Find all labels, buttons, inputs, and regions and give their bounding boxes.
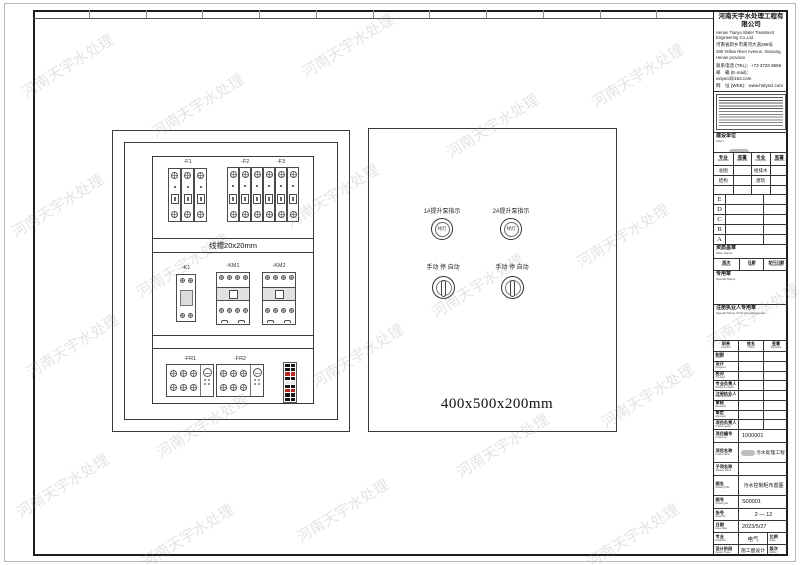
header-en: Discipline [718, 160, 729, 163]
light1-label: 1#提升泵指示 [407, 206, 477, 215]
header-en: Date [749, 265, 754, 268]
dot [208, 383, 210, 385]
relay-k1 [176, 274, 196, 322]
contactor-core [229, 290, 238, 299]
sign-row-reviewed: 审核Reviewed [714, 401, 788, 411]
row-en: Reviewed [716, 406, 739, 409]
cell [770, 166, 789, 175]
scale-cell: 比例Scale [767, 533, 788, 544]
col-header: 发行日期Issued Date [763, 259, 788, 270]
discipline-table-header: 专业Discipline 签署Signature 专业Discipline 签署… [714, 153, 788, 166]
row-en: Designed [716, 367, 739, 370]
indicator-light-1: 绿灯 [431, 218, 453, 240]
dial-icon [253, 368, 262, 377]
terminal-row [168, 384, 199, 391]
signature-rows: 制图Drawn 设计Designed 校对Checked 专业负责人Discip… [714, 352, 788, 430]
dot [208, 379, 210, 381]
value-cell: 电气 [738, 533, 767, 544]
col-header: 版次Revision [714, 259, 739, 270]
screw-icon [180, 384, 187, 391]
col-header: 专业Discipline [714, 153, 733, 165]
cell [770, 186, 789, 195]
breaker-module [227, 167, 239, 222]
label-en: Sheet No. [716, 516, 739, 519]
special-stamp-box: 专用章 Special Stamp [714, 271, 788, 305]
revision-letter: E [714, 195, 725, 204]
signature-header-cells: 职责Function 姓名Name 签署Signature [714, 341, 788, 351]
circuit-breaker-f2-f3 [227, 167, 299, 222]
label-cell: 项目名称Project Name [714, 443, 738, 462]
wire-duct-label: 线槽20x20mm [209, 240, 257, 251]
name-cell [738, 401, 763, 410]
disclaimer-text-en-lines [719, 111, 783, 128]
screw-icon [278, 171, 285, 178]
client-section: 建设单位 Client 有限公司 [714, 133, 788, 153]
circuit-breaker-f1 [168, 168, 207, 222]
header-en: Issued Date [769, 265, 782, 268]
label-cell: 设计阶段Design Phase [714, 545, 738, 556]
breaker-label-f3: -F3 [263, 159, 299, 165]
label-cell: 图名Drawing Title [714, 476, 738, 495]
screw-icon [190, 370, 197, 377]
header-en: Discipline [755, 160, 766, 163]
drawing-no-value: S00001 [742, 499, 761, 505]
company-email: 邮 箱 (E-mail)：xxtyscl@163.com [716, 70, 786, 82]
screw-icon [171, 211, 178, 218]
special-stamp-en: Special Stamp [716, 278, 786, 281]
name-cell [738, 391, 763, 400]
screw-icon [180, 313, 185, 318]
value-cell [738, 463, 788, 475]
contactor-terminals [217, 275, 249, 280]
edition-cell: 版次Edition [767, 545, 788, 556]
screw-icon [273, 308, 278, 313]
foot-tab [238, 320, 245, 323]
cell [733, 176, 752, 185]
breaker-module [168, 168, 181, 222]
cell-text: 结构 [719, 178, 728, 184]
revision-row: D [714, 205, 788, 215]
phase-value: 施工图设计 [741, 547, 765, 554]
dot [258, 383, 260, 385]
indicator-dot [200, 186, 202, 188]
screw-icon [227, 308, 232, 313]
dot [258, 379, 260, 381]
revision-letter: A [714, 235, 725, 245]
header-en: Signature [771, 347, 782, 350]
screw-icon [219, 308, 224, 313]
cell [763, 215, 788, 224]
terminal-row [218, 384, 249, 391]
sign-row-registered-engineer: 注册执业人Regi. Engineer [714, 391, 788, 401]
screw-icon [220, 370, 227, 377]
cell [733, 186, 752, 195]
revision-letter: D [714, 205, 725, 214]
client-value: 有限公司 [716, 144, 786, 153]
label-en: Project Name [716, 454, 739, 457]
cell [725, 195, 763, 204]
relay-terminals [180, 313, 193, 318]
discipline-row-empty [714, 186, 788, 195]
indicator-dot [256, 185, 258, 187]
header-en: Signature [737, 160, 748, 163]
dot [204, 379, 206, 381]
breaker-label-f2: -F2 [227, 159, 263, 165]
label-en: Edition [770, 552, 789, 555]
terminal-row [168, 370, 199, 377]
screw-icon [188, 313, 193, 318]
foot-tab [221, 320, 228, 323]
indicator-light-2: 绿灯 [500, 218, 522, 240]
label-en: Design Phase [716, 552, 739, 555]
design-phase-row: 设计阶段Design Phase 施工图设计 版次Edition [714, 545, 788, 556]
screw-icon [266, 171, 273, 178]
signature-cell [763, 391, 788, 400]
screw-icon [289, 308, 294, 313]
switch-handle-icon [441, 280, 446, 297]
screw-icon [197, 211, 204, 218]
switch2-label: 手动 停 自动 [477, 262, 547, 271]
screw-icon [219, 275, 224, 280]
drawing-title-value: 污水控制柜布置图 [743, 482, 783, 489]
name-cell [738, 362, 763, 371]
breaker-module [251, 167, 263, 222]
date-row: 日期Issue Date 2023/5/27 [714, 521, 788, 533]
screw-icon [170, 370, 177, 377]
screw-icon [278, 211, 285, 218]
signature-cell [763, 401, 788, 410]
contactor-terminals [263, 308, 295, 313]
company-web: 网 址 (WEB)：www.hntyscl.com [716, 83, 786, 89]
foot-tab [284, 320, 291, 323]
sign-row-designed: 设计Designed [714, 362, 788, 372]
screw-icon [184, 172, 191, 179]
toggle-icon [253, 194, 261, 204]
revision-row: B [714, 225, 788, 235]
label-en: Project No. [716, 437, 739, 440]
company-name-en: Henan Tianyu Water Treatment Engineering… [716, 30, 786, 41]
cell-text: 总图 [719, 168, 728, 174]
cell [725, 235, 763, 245]
cell [725, 215, 763, 224]
overload-relay-fr2 [216, 364, 264, 397]
plate-stamp-row: 资质盖章 Plate Stamp [714, 245, 788, 259]
lamp-text: 绿灯 [507, 226, 516, 232]
contactor-core [275, 290, 284, 299]
screw-icon [230, 211, 237, 218]
label-cell: 项目编号Project No. [714, 430, 738, 442]
screw-icon [281, 275, 286, 280]
cell: 总图 [714, 166, 733, 175]
label-en: Scale [770, 540, 789, 543]
col-header: 日期Date [739, 259, 764, 270]
screw-icon [289, 275, 294, 280]
cell-text: 给排水 [754, 168, 768, 174]
revision-row: E [714, 195, 788, 205]
cell-text: 建筑 [756, 178, 765, 184]
col-header: 专业Discipline [751, 153, 770, 165]
disclaimer-border [716, 94, 786, 130]
label-cell: 图号Drawing No. [714, 496, 738, 508]
contactor-terminals [263, 275, 295, 280]
toggle-icon [197, 194, 205, 204]
cell [751, 186, 770, 195]
screw-icon [188, 278, 193, 283]
disclaimer-box [714, 92, 788, 133]
label-en: Issue Date [716, 528, 739, 531]
lamp-text: 绿灯 [438, 226, 447, 232]
terminal-block-strip [283, 362, 297, 403]
header-en: Signature [774, 160, 785, 163]
revision-date-cells: 版次Revision 日期Date 发行日期Issued Date [714, 259, 788, 270]
revision-letter: B [714, 225, 725, 234]
value-cell: 污水控制柜布置图 [738, 476, 788, 495]
switch-face [505, 280, 521, 296]
discipline-row: 结构 建筑 [714, 176, 788, 186]
switch-face [436, 280, 452, 296]
signature-cell [763, 420, 788, 429]
label-en: Drawing No. [716, 503, 739, 506]
screw-icon [190, 384, 197, 391]
cell [763, 195, 788, 204]
signature-header: 职责Function 姓名Name 签署Signature [714, 341, 788, 352]
col-header: 姓名Name [738, 341, 763, 351]
screw-icon [254, 211, 261, 218]
breaker-module [194, 168, 207, 222]
date-value: 2023/5/27 [742, 524, 766, 530]
signature-cell [763, 352, 788, 361]
sign-row-drawn: 制图Drawn [714, 352, 788, 362]
indicator-dot [232, 185, 234, 187]
value-cell: 污水处理工程 [738, 443, 788, 462]
screw-icon [243, 308, 248, 313]
breaker-module [239, 167, 251, 222]
screw-icon [254, 171, 261, 178]
overload-dial-panel [250, 365, 263, 396]
row-en: Checked [716, 377, 739, 380]
breaker-label-f1: -F1 [168, 159, 207, 165]
company-tel: 联系电话 (TEL)：+73 3733 8666 [716, 63, 786, 69]
col-header: 签署Signature [770, 153, 789, 165]
toggle-icon [289, 194, 297, 204]
breaker-module [287, 167, 299, 222]
revision-letter: C [714, 215, 725, 224]
name-cell [738, 381, 763, 390]
drawing-title-row: 图名Drawing Title 污水控制柜布置图 [714, 476, 788, 496]
switch1-label: 手动 停 自动 [408, 262, 478, 271]
plate-stamp-en: Plate Stamp [716, 252, 786, 255]
screw-icon [184, 211, 191, 218]
breaker-module [275, 167, 287, 222]
row-en: Project Leader [716, 426, 739, 429]
screw-icon [243, 275, 248, 280]
registered-stamp-en: Special Stamp Of Person Registered [716, 312, 786, 315]
sheet-no-row: 张号Sheet No. 2 — 12 [714, 509, 788, 521]
row-en: Drawn [716, 357, 739, 360]
project-no-row: 项目编号Project No. 1000001 [714, 430, 788, 443]
project-no-value: 1000001 [742, 433, 763, 439]
dot [204, 383, 206, 385]
contactor-band [263, 287, 295, 301]
label-cell: 日期Issue Date [714, 521, 738, 532]
screw-icon [230, 384, 237, 391]
project-name-row: 项目名称Project Name 污水处理工程 [714, 443, 788, 463]
top-zone-strip [33, 10, 713, 19]
light2-label: 2#提升泵指示 [476, 206, 546, 215]
screw-icon [197, 172, 204, 179]
header-en: Revision [722, 265, 732, 268]
contactor-label-km2: -KM2 [254, 263, 304, 269]
cell [763, 235, 788, 245]
selector-switch-2 [501, 276, 524, 299]
indicator-dot [268, 185, 270, 187]
cell: 给排水 [751, 166, 770, 175]
col-header: 签署Signature [763, 341, 788, 351]
screw-icon [170, 384, 177, 391]
screw-icon [227, 275, 232, 280]
label-en: Drawing Title [716, 487, 739, 490]
signature-cell [763, 362, 788, 371]
cabinet-dimension-text: 400x500x200mm [397, 396, 597, 413]
cell [714, 186, 733, 195]
overload-relay-fr1 [166, 364, 214, 397]
screw-icon [290, 171, 297, 178]
screw-icon [281, 308, 286, 313]
terminal-row [218, 370, 249, 377]
company-address-cn: 河南省新乡市黄河大道288号 [716, 42, 786, 48]
overload-poles [167, 365, 200, 396]
registered-stamp-box: 注册执业人专用章 Special Stamp Of Person Registe… [714, 305, 788, 341]
name-cell [738, 420, 763, 429]
cell [725, 205, 763, 214]
cell [733, 166, 752, 175]
test-buttons [254, 379, 260, 385]
indicator-dot [244, 185, 246, 187]
value-cell: S00001 [738, 496, 788, 508]
label-cell: 子项名称Subitem Name [714, 463, 738, 475]
screw-icon [290, 211, 297, 218]
screw-icon [220, 384, 227, 391]
contactor-km1 [216, 272, 250, 325]
selector-switch-1 [432, 276, 455, 299]
breaker-module [263, 167, 275, 222]
indicator-dot [292, 185, 294, 187]
sheet-no-value: 2 — 12 [755, 512, 773, 518]
screw-icon [180, 370, 187, 377]
lamp-lens: 绿灯 [504, 222, 519, 237]
screw-icon [265, 275, 270, 280]
overload-dial-panel [200, 365, 213, 396]
row-en: Approved [716, 416, 739, 419]
screw-icon [240, 370, 247, 377]
revision-row: A [714, 235, 788, 245]
cell [770, 176, 789, 185]
relay-label-k1: -K1 [168, 265, 204, 271]
sign-row-checked: 校对Checked [714, 372, 788, 382]
overload-poles [217, 365, 250, 396]
contactor-feet [263, 320, 295, 323]
value-cell: 施工图设计 [738, 545, 767, 556]
cell [763, 225, 788, 234]
redaction-blob [741, 450, 755, 456]
name-cell [738, 372, 763, 381]
dot [254, 379, 256, 381]
client-label-en: Client [716, 140, 786, 143]
indicator-dot [280, 185, 282, 187]
drawing-sheet: 河南天宇水处理 河南天宇水处理 河南天宇水处理 河南天宇水处理 河南天宇水处理 … [0, 0, 800, 565]
project-name-value: 污水处理工程 [756, 449, 785, 456]
screw-icon [235, 308, 240, 313]
toggle-icon [265, 194, 273, 204]
contactor-terminals [217, 308, 249, 313]
breaker-module [181, 168, 194, 222]
company-name-cn: 河南天宇水处理工程有限公司 [716, 13, 786, 29]
contactor-feet [217, 320, 249, 323]
name-cell [738, 411, 763, 420]
wire-duct: 线槽20x20mm [152, 238, 314, 253]
panel-front-view [368, 128, 617, 432]
revision-letter-table: E D C B A [714, 195, 788, 245]
toggle-icon [171, 194, 179, 204]
title-block: 河南天宇水处理工程有限公司 Henan Tianyu Water Treatme… [713, 10, 788, 556]
sign-row-project-leader: 项目负责人Project Leader [714, 420, 788, 429]
discipline-row: 总图 给排水 [714, 166, 788, 176]
label-cell: 专业Discipline [714, 533, 738, 544]
toggle-icon [277, 194, 285, 204]
label-en: Subitem Name [716, 470, 739, 473]
overload-label-fr1: -FR1 [166, 356, 214, 362]
overload-label-fr2: -FR2 [216, 356, 264, 362]
contactor-km2 [262, 272, 296, 325]
revision-date-header: 版次Revision 日期Date 发行日期Issued Date [714, 259, 788, 271]
value-cell: 1000001 [738, 430, 788, 442]
name-cell [738, 352, 763, 361]
subitem-row: 子项名称Subitem Name [714, 463, 788, 476]
revision-row: C [714, 215, 788, 225]
screw-icon [265, 308, 270, 313]
screw-icon [180, 278, 185, 283]
screw-icon [242, 171, 249, 178]
contactor-label-km1: -KM1 [208, 263, 258, 269]
relay-terminals [180, 278, 193, 283]
relay-body [180, 290, 193, 306]
label-en: Discipline [716, 540, 739, 543]
screw-icon [230, 171, 237, 178]
toggle-icon [229, 194, 237, 204]
discipline-signature-table: 专业Discipline 签署Signature 专业Discipline 签署… [714, 153, 788, 195]
cell [763, 205, 788, 214]
signature-cell [763, 411, 788, 420]
value-cell: 2023/5/27 [738, 521, 788, 532]
toggle-icon [241, 194, 249, 204]
company-address-en: 288 Yellow River Avenue, Xinxiang, Henan… [716, 49, 786, 60]
screw-icon [235, 275, 240, 280]
disclaimer-text-cn-lines [719, 97, 783, 109]
value-cell: 2 — 12 [738, 509, 788, 520]
sign-row-approved: 审定Approved [714, 411, 788, 421]
discipline-scale-row: 专业Discipline 电气 比例Scale [714, 533, 788, 545]
row-en: Discipline Leader [716, 387, 739, 390]
contactor-band [217, 287, 249, 301]
screw-icon [266, 211, 273, 218]
drawing-no-row: 图号Drawing No. S00001 [714, 496, 788, 509]
sign-row-discipline-leader: 专业负责人Discipline Leader [714, 381, 788, 391]
screw-icon [230, 370, 237, 377]
company-header: 河南天宇水处理工程有限公司 Henan Tianyu Water Treatme… [714, 10, 788, 92]
indicator-dot [187, 186, 189, 188]
cell: 建筑 [751, 176, 770, 185]
discipline-value: 电气 [747, 535, 758, 543]
